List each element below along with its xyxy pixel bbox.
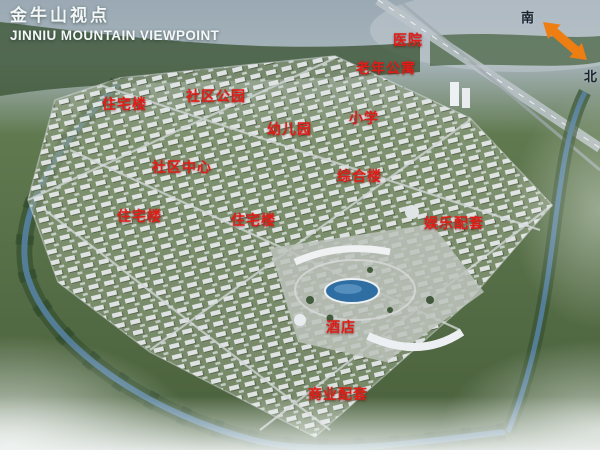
north-south-arrow-icon xyxy=(535,12,600,72)
title-chinese: 金牛山视点 xyxy=(10,6,219,26)
site-illustration xyxy=(0,0,600,450)
label-residential-center: 住宅楼 xyxy=(231,213,276,227)
label-entertainment-facilities: 娱乐配套 xyxy=(424,216,484,230)
title-english: JINNIU MOUNTAIN VIEWPOINT xyxy=(10,28,219,44)
label-community-center: 社区中心 xyxy=(152,160,212,174)
label-hospital: 医院 xyxy=(393,33,423,47)
label-senior-apartments: 老年公寓 xyxy=(356,61,416,75)
label-complex-building: 综合楼 xyxy=(337,169,382,183)
viewpoint-title: 金牛山视点 JINNIU MOUNTAIN VIEWPOINT xyxy=(10,6,219,43)
label-hotel: 酒店 xyxy=(326,320,356,334)
label-primary-school: 小学 xyxy=(349,111,379,125)
label-residential-upper-left: 住宅楼 xyxy=(102,97,147,111)
label-community-park: 社区公园 xyxy=(186,89,246,103)
label-residential-mid-left: 住宅楼 xyxy=(117,209,162,223)
compass-south-label: 南 xyxy=(521,11,534,24)
label-commercial-facilities: 商业配套 xyxy=(308,387,368,401)
aerial-rendering-canvas: 金牛山视点 JINNIU MOUNTAIN VIEWPOINT 医院 老年公寓 … xyxy=(0,0,600,450)
label-kindergarten: 幼儿园 xyxy=(267,122,312,136)
